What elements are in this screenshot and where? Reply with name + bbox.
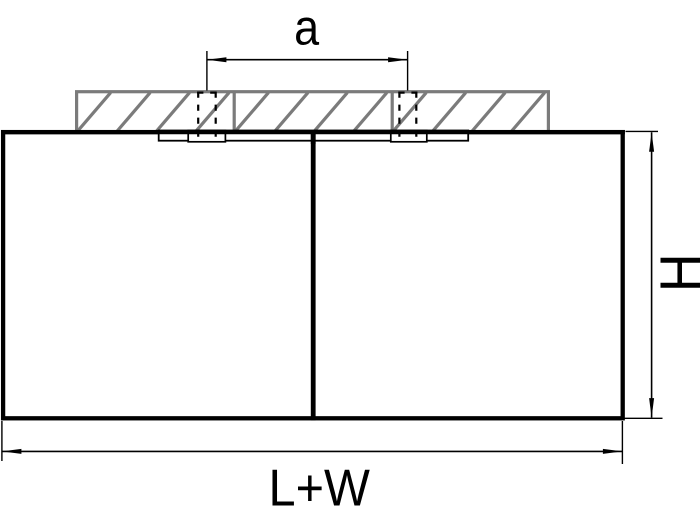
svg-text:L+W: L+W: [269, 458, 371, 517]
svg-text:H: H: [647, 253, 700, 292]
svg-text:a: a: [294, 0, 320, 56]
